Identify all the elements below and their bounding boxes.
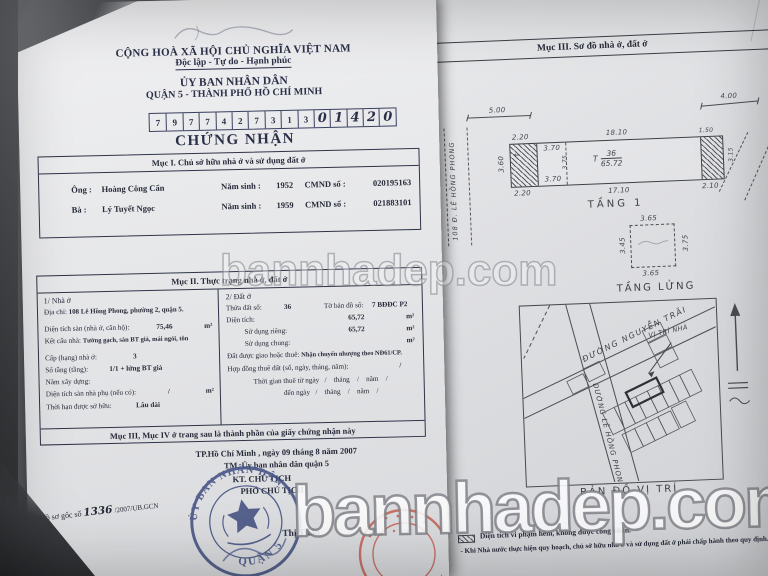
owner-row-2: Bà : Lý Tuyết Ngọc Năm sinh : 1959 CMND … xyxy=(72,197,412,215)
file-reference: Hồ sơ gốc số 1336 /2007/UB.GCN xyxy=(39,499,159,524)
owner-2-birth-label: Năm sinh : xyxy=(221,200,276,211)
dim-left-width: 5.00 xyxy=(489,106,506,115)
private-use-value: 65,72 xyxy=(348,325,364,333)
dim-rear-top: 1.50 xyxy=(699,127,714,135)
owner-1-birth-label: Năm sinh : xyxy=(221,180,276,191)
serial-digit-handwritten: 4 xyxy=(346,109,363,126)
muc2-box: Mục II. Thực trạng nhà ở, đất ở 1/ Nhà ở… xyxy=(36,267,426,446)
note-line-1: Diện tích vi phạm hẻm, không được công n… xyxy=(480,525,631,540)
aux-area-label: Diện tích sàn nhà phụ (nếu có): xyxy=(46,389,136,399)
owner-2-id: 021883101 xyxy=(373,197,411,208)
storeys-value: 1/1 + lửng BT giả xyxy=(109,364,162,373)
owner-1-label: Ông : xyxy=(71,184,102,195)
storeys-label: Số tầng (tầng): xyxy=(45,366,88,375)
file-ref-number: 1336 xyxy=(83,504,113,519)
parcel-area: 65.72 xyxy=(601,158,623,168)
structure-label: Kết cấu nhà: xyxy=(45,336,82,345)
serial-digit: 9 xyxy=(166,113,183,130)
owner-1-birth: 1952 xyxy=(276,180,305,191)
aux-area-line: Diện tích sàn nhà phụ (nếu có): / m² xyxy=(46,387,216,400)
shared-use-unit: m² xyxy=(406,336,414,344)
address-label: Địa chỉ: xyxy=(44,308,67,317)
photo-backdrop-edge xyxy=(0,0,18,576)
dim-inner-depth: 3.75 xyxy=(561,155,569,170)
mezz-dim-bottom: 3.65 xyxy=(642,269,659,278)
grade-label: Cấp (hạng) nhà ở: xyxy=(45,353,97,362)
dim-bottom-length: 17.10 xyxy=(608,186,630,195)
dim-inner-top: 3.70 xyxy=(543,144,560,153)
dimension-line-left xyxy=(467,115,531,119)
aux-area-unit: m² xyxy=(206,387,214,395)
owner-2-birth: 1959 xyxy=(276,199,305,210)
land-area-label: Diện tích: xyxy=(226,316,255,325)
owner-row-1: Ông : Hoàng Công Cẩn Năm sinh : 1952 CMN… xyxy=(71,177,411,195)
muc3-title: Mục III. Sơ đồ nhà ở, đất ở xyxy=(406,30,768,64)
site-map-sketch: ĐƯỜNG NGUYỄN TRÃI ĐƯỜNG LÊ HỒNG PHONG VỊ… xyxy=(520,299,722,486)
lease-line: Hợp đồng thuê đất (số, ngày, tháng, năm)… xyxy=(227,361,417,375)
official-stamp: ỦY BAN NHÂN DÂN QUẬN 5 xyxy=(175,450,317,576)
dim-right-width: 4.00 xyxy=(720,92,737,101)
owner-2-label: Bà : xyxy=(72,204,103,215)
file-ref-suffix: /2007/UB.GCN xyxy=(114,502,159,515)
address-line: Địa chỉ: 108 Lê Hồng Phong, phường 2, qu… xyxy=(44,305,214,318)
certificate-page-right: Mục III. Sơ đồ nhà ở, đất ở 5.00 4.00 10… xyxy=(404,0,768,576)
muc2-columns: 1/ Nhà ở Địa chỉ: 108 Lê Hồng Phong, phư… xyxy=(38,285,425,429)
origin-label: Đất được giao hoặc thuê: xyxy=(227,351,300,361)
certificate-page-left: CỘNG HOÀ XÃ HỘI CHỦ NGHĨA VIỆT NAM Độc l… xyxy=(16,0,449,576)
lease-label: Hợp đồng thuê đất (số, ngày, tháng, năm)… xyxy=(227,362,348,373)
year-line: Năm xây dựng: xyxy=(46,375,216,388)
address-value: 108 Lê Hồng Phong, phường 2, quận 5. xyxy=(69,306,184,316)
muc1-box: Mục I. Chủ sở hữu nhà ở và sử dụng đất ở… xyxy=(37,148,421,239)
serial-digit: 7 xyxy=(248,111,265,128)
motto-text: Độc lập - Tự do - Hạnh phúc xyxy=(175,56,291,71)
map-sheet-label: Tờ bản đồ số: xyxy=(324,301,364,310)
serial-digit: 1 xyxy=(281,111,298,128)
shared-use-label: Sử dụng chung: xyxy=(245,339,291,348)
serial-digit: 4 xyxy=(215,112,232,129)
grade-line: Cấp (hạng) nhà ở: 3 xyxy=(45,351,215,364)
grade-value: 3 xyxy=(133,353,137,361)
national-header: CỘNG HOÀ XÃ HỘI CHỦ NGHĨA VIỆT NAM Độc l… xyxy=(17,40,450,104)
dim-inner-bottom: 3.70 xyxy=(544,175,561,184)
dim-top-length: 18.10 xyxy=(606,128,628,137)
floor1-outline: T 36 65.72 xyxy=(509,135,725,188)
site-map-box: ĐƯỜNG NGUYỄN TRÃI ĐƯỜNG LÊ HỒNG PHONG VỊ… xyxy=(519,298,724,488)
owner-2-name: Lý Tuyết Ngọc xyxy=(102,201,222,214)
private-use-label: Sử dụng riêng: xyxy=(244,327,287,336)
floor-area-unit: m² xyxy=(204,321,212,329)
floor1-label: TẦNG 1 xyxy=(568,197,664,212)
signer-name: Thị Thảo xyxy=(246,527,356,539)
land-area-value: 65,72 xyxy=(348,313,364,321)
land-column: 2/ Đất ở Thửa đất số: 36 Tờ bản đồ số: 7… xyxy=(219,285,425,425)
tenure-value: Lâu dài xyxy=(136,400,160,409)
year-label: Năm xây dựng: xyxy=(46,378,91,387)
owner-1-id: 020195163 xyxy=(373,177,411,188)
structure-line: Kết cấu nhà: Tường gạch, sàn BT giả, mái… xyxy=(45,333,215,346)
dim-front-depth: 3.60 xyxy=(497,156,506,173)
floor-area-label: Diện tích sàn (nhà ở, căn hộ): xyxy=(44,323,129,333)
floor-area-line: Diện tích sàn (nhà ở, căn hộ): 75,46 m² xyxy=(44,321,214,334)
tenure-label: Thời hạn được sở hữu: xyxy=(46,401,112,410)
tenure-line: Thời hạn được sở hữu: Lâu dài xyxy=(46,399,216,412)
muc1-title: Mục I. Chủ sở hữu nhà ở và sử dụng đất ở xyxy=(38,149,418,175)
mezzanine-label: TẦNG LỬNG xyxy=(596,280,716,296)
floor-area-value: 75,46 xyxy=(156,322,172,330)
serial-digit: 3 xyxy=(297,110,314,127)
north-arrow-icon xyxy=(723,300,753,411)
mezz-dim-top: 3.65 xyxy=(640,214,657,223)
parcel-tag: T 36 65.72 xyxy=(592,145,713,169)
serial-digit-handwritten: 0 xyxy=(313,110,330,127)
serial-digit-handwritten: 1 xyxy=(330,110,347,127)
serial-digit-handwritten: 2 xyxy=(363,109,380,126)
parcel-fraction: 36 65.72 xyxy=(600,148,622,168)
lease-value: / xyxy=(399,361,401,369)
serial-digit: 7 xyxy=(150,114,167,131)
muc3-title-strip: Mục III. Sơ đồ nhà ở, đất ở xyxy=(406,29,768,64)
serial-digit-handwritten: 0 xyxy=(379,108,396,125)
parcel-tag-prefix: T xyxy=(593,154,598,163)
dim-front-bottom: 2.20 xyxy=(514,189,531,198)
map-sheet-value: 7 BĐĐC P2 xyxy=(372,300,408,309)
parcel-value: 36 xyxy=(284,303,291,311)
origin-value: Nhận chuyển nhượng theo NĐ61/CP. xyxy=(301,350,402,359)
entry-arrow-icon: ← xyxy=(513,150,520,159)
street-2-label: ĐƯỜNG LÊ HỒNG PHONG xyxy=(591,382,628,486)
hatch-legend-icon xyxy=(458,535,475,544)
owner-1-id-label: CMND số : xyxy=(304,178,373,190)
mezzanine-scribble xyxy=(632,225,675,266)
floor1-street-label: 108 Đ. LÊ HỒNG PHONG xyxy=(448,141,460,240)
serial-digit: 7 xyxy=(199,113,216,130)
serial-digit: 7 xyxy=(182,113,199,130)
mezz-dim-right: 3.75 xyxy=(681,234,690,251)
mezz-dim-left: 3.45 xyxy=(618,237,627,254)
parcel-label: Thửa đất số: xyxy=(226,304,262,313)
storeys-line: Số tầng (tầng): 1/1 + lửng BT giả xyxy=(45,363,215,376)
house-heading: 1/ Nhà ở xyxy=(44,293,214,306)
dimension-line-right xyxy=(701,100,759,106)
photo-of-certificate: { "watermark": { "center": "bannhadep.co… xyxy=(0,0,768,576)
private-use-unit: m² xyxy=(406,324,414,332)
dim-rear-bottom: 2.10 xyxy=(702,182,719,191)
dim-front-top: 2.20 xyxy=(512,133,529,142)
boundary-dashed-line xyxy=(744,123,768,200)
serial-digit: 2 xyxy=(231,112,248,129)
owner-2-id-label: CMND số : xyxy=(305,198,374,210)
house-column: 1/ Nhà ở Địa chỉ: 108 Lê Hồng Phong, phư… xyxy=(38,289,222,428)
serial-digit: 3 xyxy=(264,111,281,128)
lease-to-line: đến ngày / tháng / năm / xyxy=(228,386,418,400)
mezzanine-outline xyxy=(630,223,677,268)
land-area-unit: m² xyxy=(406,312,414,320)
owner-1-name: Hoàng Công Cẩn xyxy=(101,181,221,194)
aux-area-value: / xyxy=(168,388,170,396)
file-ref-prefix: Hồ sơ gốc số xyxy=(39,509,82,523)
structure-value: Tường gạch, sàn BT giả, mái ngói, tôn xyxy=(83,335,189,344)
